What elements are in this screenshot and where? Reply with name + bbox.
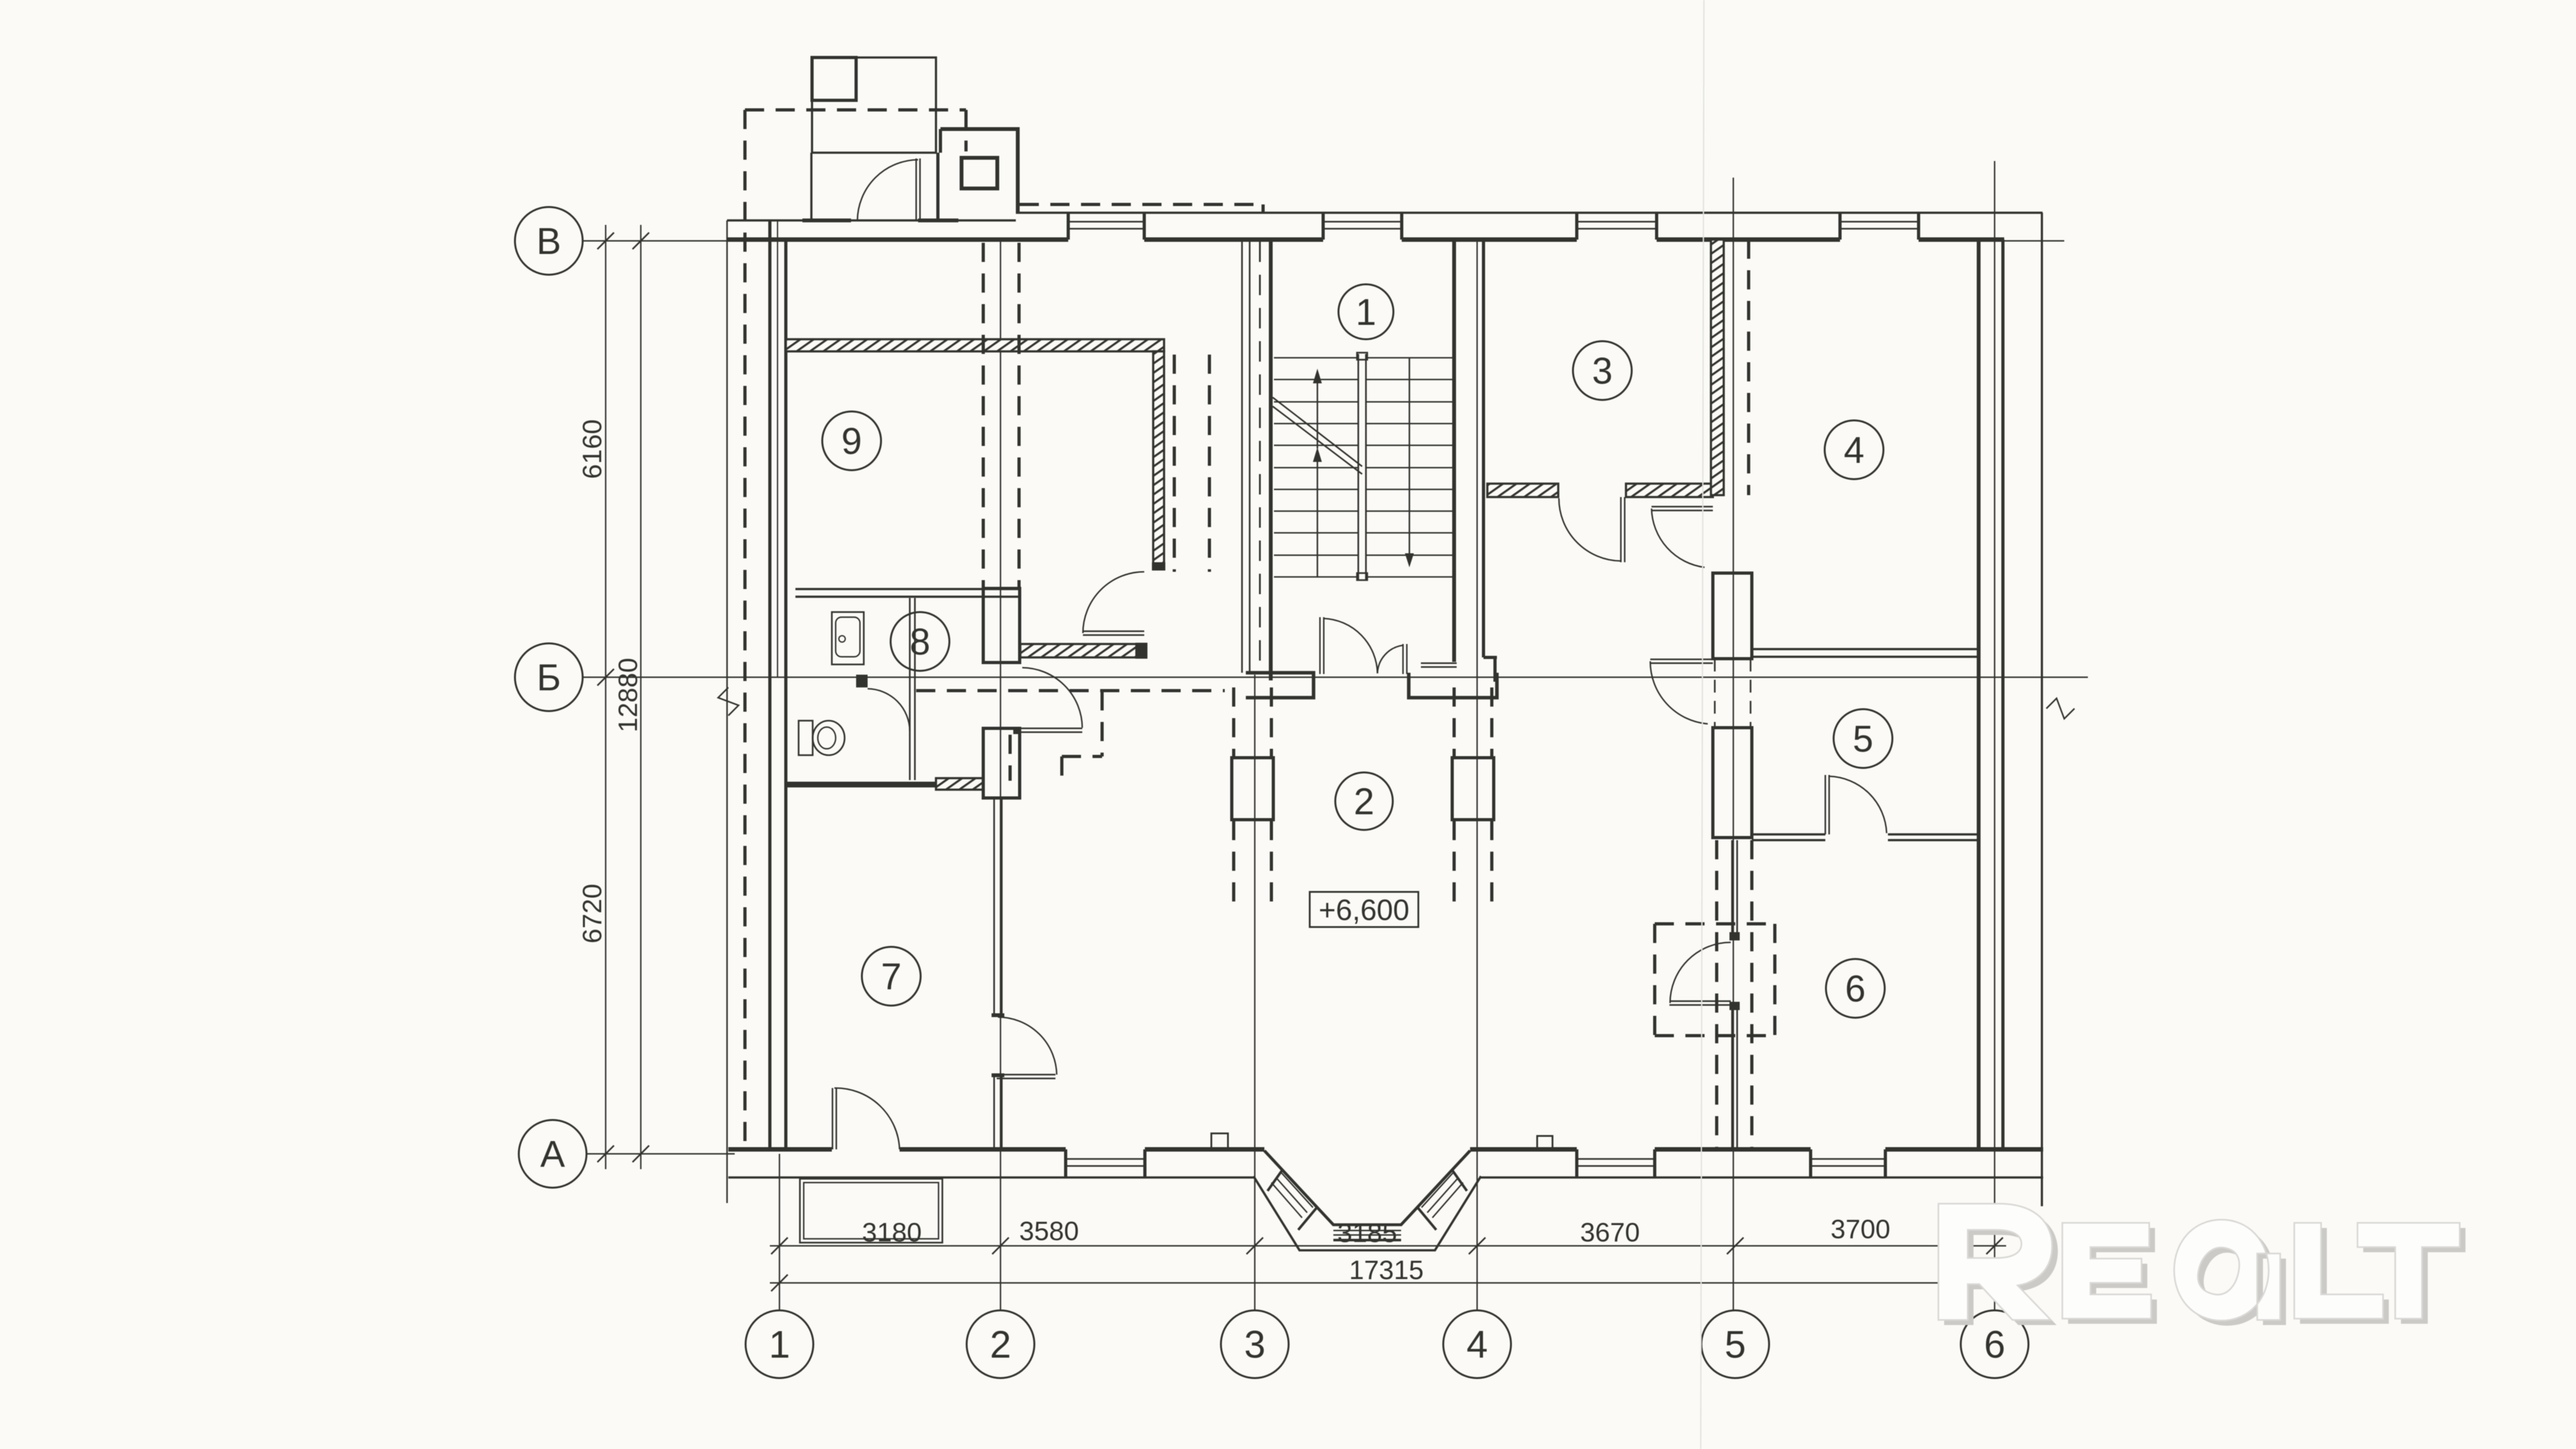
svg-text:8: 8 <box>910 621 930 663</box>
svg-text:5: 5 <box>1724 1323 1745 1366</box>
svg-text:12880: 12880 <box>613 658 643 733</box>
svg-text:2: 2 <box>990 1323 1011 1366</box>
svg-text:3185: 3185 <box>1337 1218 1397 1248</box>
svg-text:3580: 3580 <box>1019 1216 1078 1246</box>
svg-text:9: 9 <box>841 420 862 462</box>
svg-text:5: 5 <box>1853 718 1873 760</box>
svg-text:В: В <box>537 220 562 262</box>
svg-text:17315: 17315 <box>1349 1255 1424 1285</box>
svg-text:А: А <box>540 1133 565 1175</box>
svg-text:1: 1 <box>1356 291 1376 333</box>
svg-text:2: 2 <box>1354 781 1374 822</box>
svg-text:4: 4 <box>1466 1323 1487 1366</box>
svg-text:6160: 6160 <box>577 419 607 479</box>
svg-text:+6,600: +6,600 <box>1319 893 1409 926</box>
svg-text:1: 1 <box>769 1323 790 1366</box>
svg-text:7: 7 <box>881 956 901 997</box>
svg-text:6: 6 <box>1984 1323 2005 1366</box>
svg-text:3: 3 <box>1244 1323 1265 1366</box>
svg-text:6: 6 <box>1845 968 1866 1009</box>
svg-text:3670: 3670 <box>1580 1217 1639 1247</box>
svg-text:4: 4 <box>1844 429 1864 471</box>
svg-text:3180: 3180 <box>862 1217 921 1247</box>
svg-text:3: 3 <box>1592 350 1613 392</box>
svg-text:Б: Б <box>537 657 561 698</box>
svg-text:6720: 6720 <box>577 884 607 943</box>
svg-text:3700: 3700 <box>1830 1214 1890 1244</box>
